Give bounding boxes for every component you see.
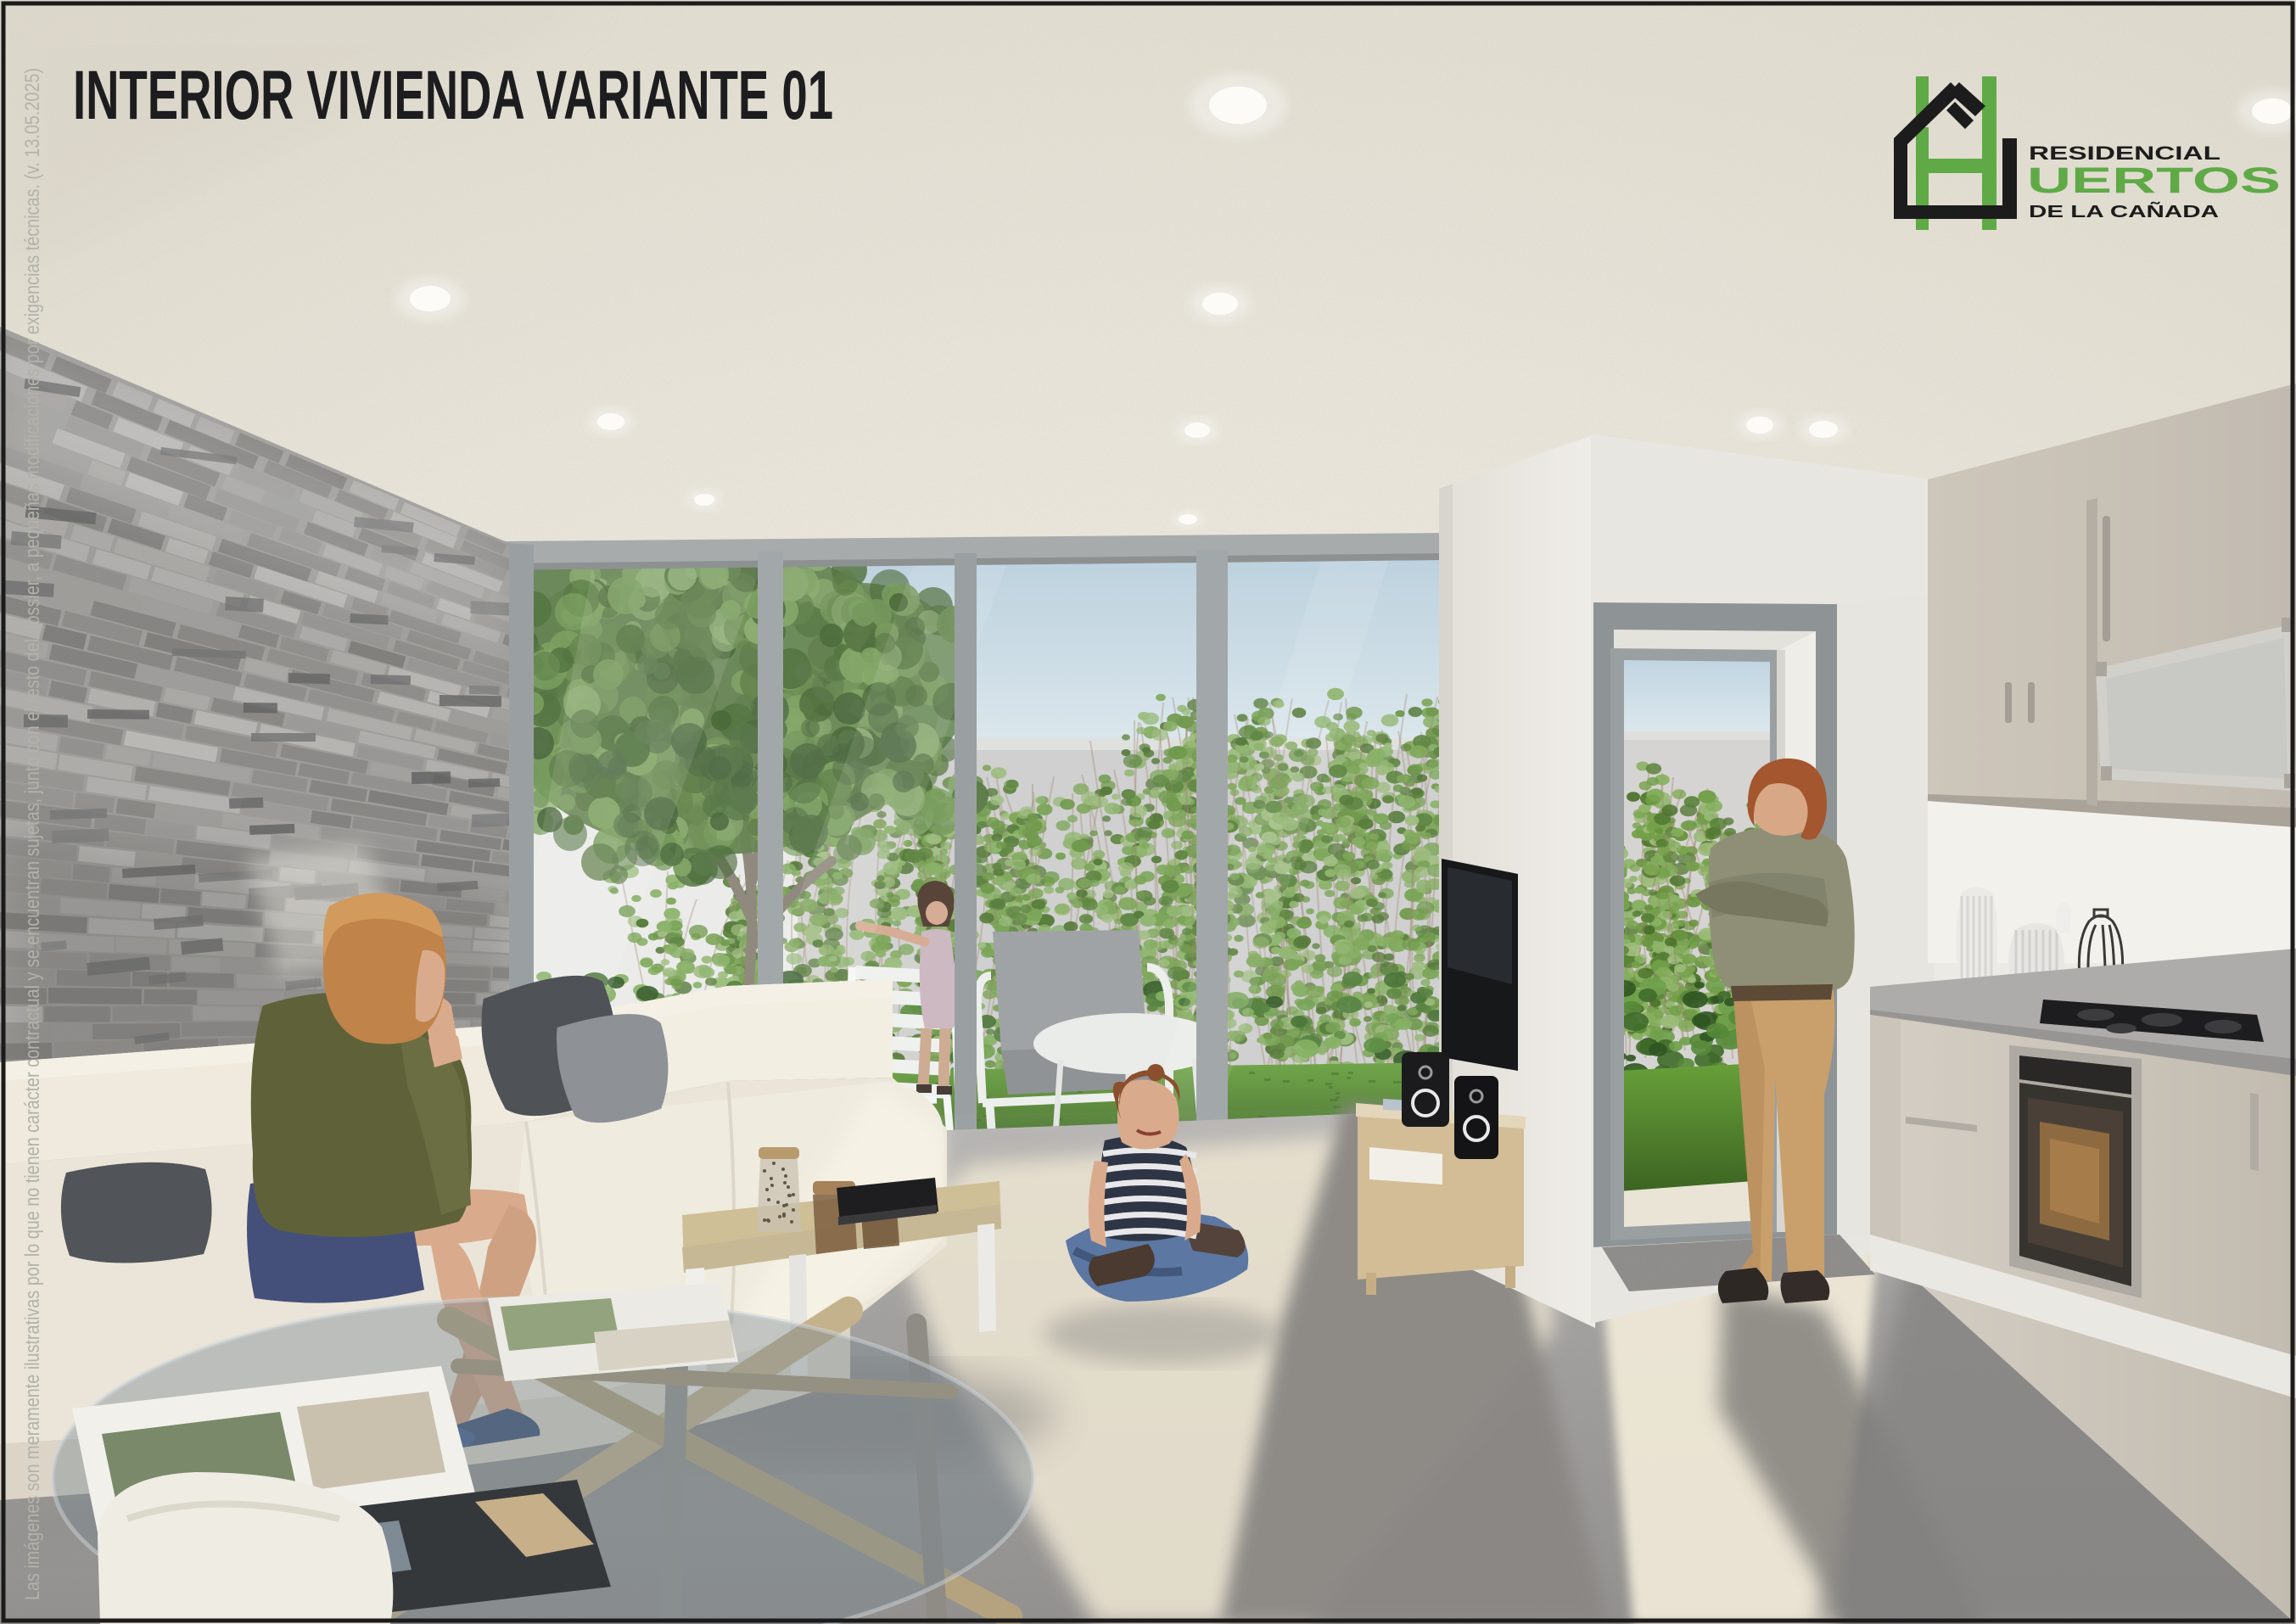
svg-text:INTERIOR VIVIENDA VARIANTE 01: INTERIOR VIVIENDA VARIANTE 01 (73, 57, 833, 134)
svg-text:DE LA CAÑADA: DE LA CAÑADA (2029, 202, 2219, 221)
svg-text:UERTOS: UERTOS (2027, 160, 2281, 201)
svg-text:Las imágenes son meramente ilu: Las imágenes son meramente ilustrativas … (21, 68, 44, 1600)
